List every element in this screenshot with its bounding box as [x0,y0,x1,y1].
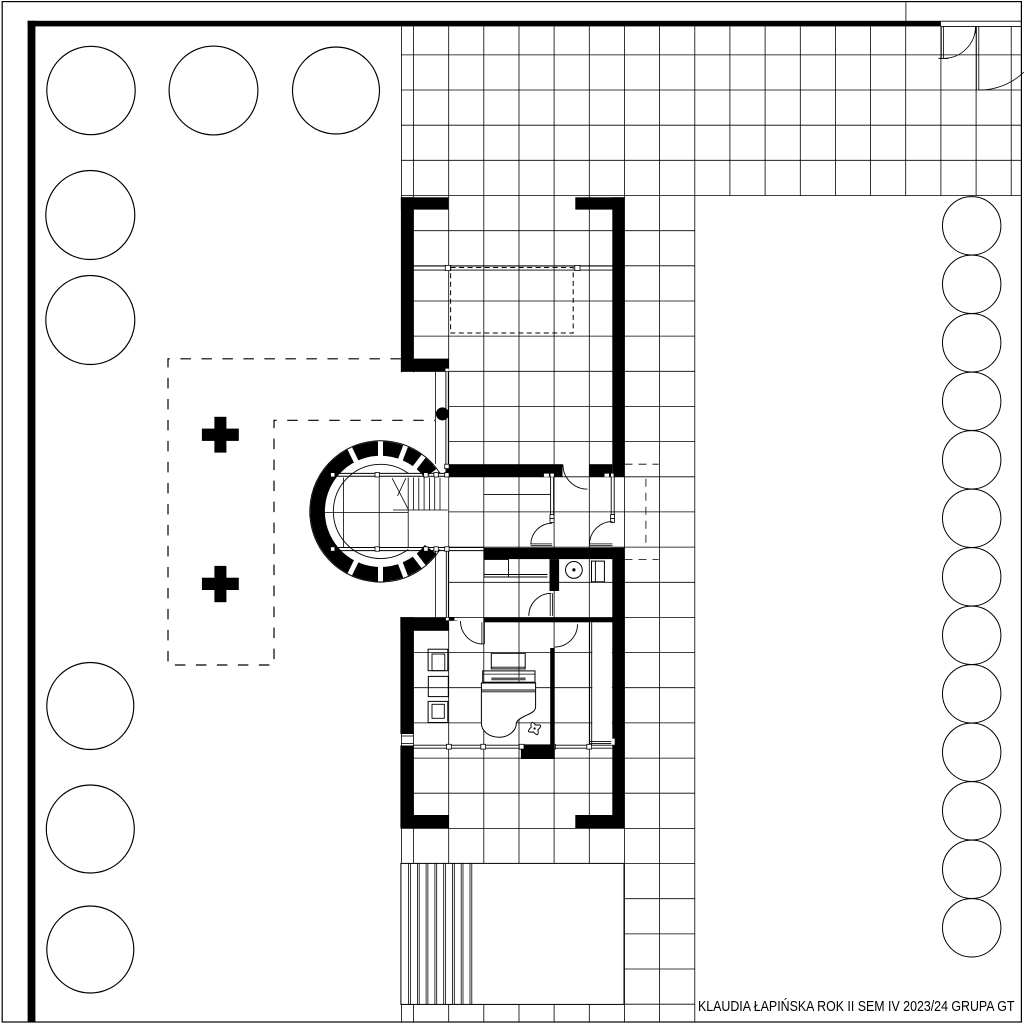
svg-text:KLAUDIA ŁAPIŃSKA ROK II SEM IV: KLAUDIA ŁAPIŃSKA ROK II SEM IV 2023/24 G… [698,998,1015,1015]
